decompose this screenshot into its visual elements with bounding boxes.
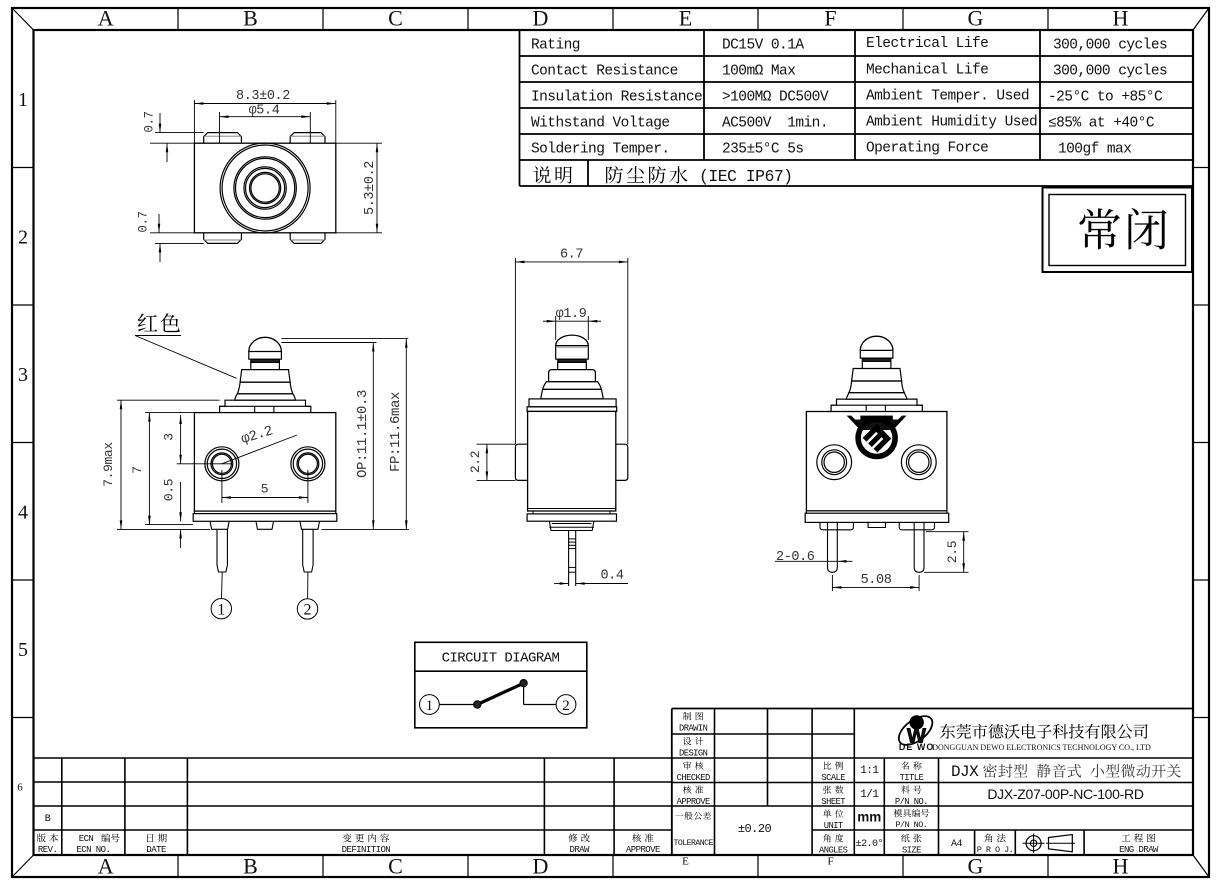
svg-text:CIRCUIT DIAGRAM: CIRCUIT DIAGRAM xyxy=(442,651,560,667)
svg-text:5: 5 xyxy=(261,482,268,497)
svg-text:7: 7 xyxy=(130,466,145,473)
svg-text:Electrical Life: Electrical Life xyxy=(866,36,988,52)
svg-text:(IEC IP67): (IEC IP67) xyxy=(699,167,793,186)
svg-text:DRAWIN: DRAWIN xyxy=(679,724,708,734)
svg-text:DONGGUAN DEWO ELECTRONICS TECH: DONGGUAN DEWO ELECTRONICS TECHNOLOGY CO.… xyxy=(932,743,1151,752)
svg-text:C: C xyxy=(388,6,403,31)
svg-text:300,000 cycles: 300,000 cycles xyxy=(1053,64,1167,80)
svg-text:ECN NO.: ECN NO. xyxy=(76,845,110,855)
svg-text:1: 1 xyxy=(18,89,28,111)
svg-text:0.4: 0.4 xyxy=(600,569,623,584)
svg-text:Ambient Temper. Used: Ambient Temper. Used xyxy=(866,89,1029,105)
svg-text:1/1: 1/1 xyxy=(860,789,879,801)
svg-text:TITLE: TITLE xyxy=(900,773,924,783)
svg-text:2.2: 2.2 xyxy=(468,451,483,473)
svg-text:B: B xyxy=(45,814,51,825)
svg-text:2: 2 xyxy=(562,698,570,714)
svg-text:1: 1 xyxy=(426,698,434,714)
svg-text:Mechanical Life: Mechanical Life xyxy=(866,63,988,79)
svg-text:CHECKED: CHECKED xyxy=(677,773,710,783)
svg-text:APPROVE: APPROVE xyxy=(677,797,710,807)
svg-text:F: F xyxy=(827,856,833,868)
svg-text:4: 4 xyxy=(18,501,28,523)
svg-text:6.7: 6.7 xyxy=(560,248,583,263)
svg-text:φ1.9: φ1.9 xyxy=(556,307,587,322)
svg-text:DRAW: DRAW xyxy=(569,845,590,855)
svg-text:OP:11.1±0.3: OP:11.1±0.3 xyxy=(355,390,371,478)
svg-text:ENG DRAW: ENG DRAW xyxy=(1119,845,1159,855)
svg-text:DE WO: DE WO xyxy=(899,742,935,752)
svg-text:≤85% at +40°C: ≤85% at +40°C xyxy=(1048,116,1155,132)
svg-text:F: F xyxy=(824,6,836,31)
svg-text:G: G xyxy=(968,6,984,31)
svg-text:2: 2 xyxy=(18,226,28,248)
svg-text:3: 3 xyxy=(162,433,177,440)
svg-text:D: D xyxy=(533,6,549,31)
svg-text:5.08: 5.08 xyxy=(861,573,892,588)
svg-text:0.5: 0.5 xyxy=(162,479,177,501)
svg-text:Operating Force: Operating Force xyxy=(866,141,988,157)
svg-text:5: 5 xyxy=(18,639,28,661)
svg-text:±0.20: ±0.20 xyxy=(738,822,772,836)
svg-text:G: G xyxy=(968,854,984,879)
svg-text:TOLERANCE: TOLERANCE xyxy=(674,839,714,848)
svg-text:Rating: Rating xyxy=(531,38,580,54)
svg-text:2.5: 2.5 xyxy=(945,541,960,563)
svg-text:-25°C to +85°C: -25°C to +85°C xyxy=(1048,90,1163,106)
svg-text:2-0.6: 2-0.6 xyxy=(776,550,815,565)
svg-text:P R O J.: P R O J. xyxy=(977,845,1013,855)
svg-text:Withstand Voltage: Withstand Voltage xyxy=(531,116,670,132)
svg-text:REV.: REV. xyxy=(38,845,57,855)
svg-text:7.9max: 7.9max xyxy=(101,442,116,487)
svg-text:±2.0°: ±2.0° xyxy=(856,838,883,850)
svg-text:E: E xyxy=(679,6,692,31)
svg-text:Contact Resistance: Contact Resistance xyxy=(531,64,678,80)
svg-text:DESIGN: DESIGN xyxy=(679,749,708,759)
svg-text:H: H xyxy=(1113,6,1129,31)
svg-text:DEFINITION: DEFINITION xyxy=(342,845,391,855)
svg-text:ANGLES: ANGLES xyxy=(819,846,848,856)
svg-text:DJX: DJX xyxy=(951,763,979,781)
svg-text:1:1: 1:1 xyxy=(860,765,879,777)
svg-text:SIZE: SIZE xyxy=(902,846,921,856)
svg-text:100gf max: 100gf max xyxy=(1058,142,1132,158)
svg-text:mm: mm xyxy=(857,810,881,825)
svg-text:DATE: DATE xyxy=(146,845,166,855)
svg-text:P/N NO.: P/N NO. xyxy=(895,820,927,830)
svg-text:B: B xyxy=(243,854,258,879)
svg-text:D: D xyxy=(533,854,549,879)
svg-text:6: 6 xyxy=(17,781,23,793)
svg-text:Ambient Humidity Used: Ambient Humidity Used xyxy=(866,115,1037,131)
svg-text:E: E xyxy=(682,856,689,868)
svg-text:H: H xyxy=(1113,854,1129,879)
svg-text:DJX-Z07-00P-NC-100-RD: DJX-Z07-00P-NC-100-RD xyxy=(987,786,1143,802)
svg-text:SHEET: SHEET xyxy=(821,797,845,807)
svg-text:φ5.4: φ5.4 xyxy=(249,104,280,119)
svg-text:SCALE: SCALE xyxy=(821,773,845,783)
svg-text:Soldering Temper.: Soldering Temper. xyxy=(531,142,670,158)
svg-text:ECN: ECN xyxy=(79,834,94,844)
svg-text:UNIT: UNIT xyxy=(824,821,843,831)
svg-text:>100MΩ DC500V: >100MΩ DC500V xyxy=(722,90,829,106)
svg-text:FP:11.6max: FP:11.6max xyxy=(388,392,404,472)
svg-text:1: 1 xyxy=(217,602,225,619)
svg-text:A: A xyxy=(98,6,114,31)
svg-text:C: C xyxy=(388,854,403,879)
svg-text:B: B xyxy=(243,6,258,31)
svg-text:0.7: 0.7 xyxy=(143,111,157,132)
svg-text:5.3±0.2: 5.3±0.2 xyxy=(363,161,378,215)
svg-text:8.3±0.2: 8.3±0.2 xyxy=(236,89,290,104)
svg-text:300,000 cycles: 300,000 cycles xyxy=(1053,38,1167,54)
svg-text:P/N NO.: P/N NO. xyxy=(895,797,928,807)
svg-text:A4: A4 xyxy=(951,839,962,850)
svg-text:100mΩ Max: 100mΩ Max xyxy=(722,64,796,80)
svg-text:DC15V 0.1A: DC15V 0.1A xyxy=(722,38,804,54)
svg-text:APPROVE: APPROVE xyxy=(626,845,660,855)
svg-text:3: 3 xyxy=(18,364,28,386)
svg-text:2: 2 xyxy=(304,602,312,619)
svg-text:A: A xyxy=(98,854,114,879)
svg-text:AC500V 1min.: AC500V 1min. xyxy=(722,116,828,132)
svg-text:0.7: 0.7 xyxy=(137,211,151,232)
svg-text:Insulation Resistance: Insulation Resistance xyxy=(531,90,702,106)
svg-text:235±5°C 5s: 235±5°C 5s xyxy=(722,142,804,158)
